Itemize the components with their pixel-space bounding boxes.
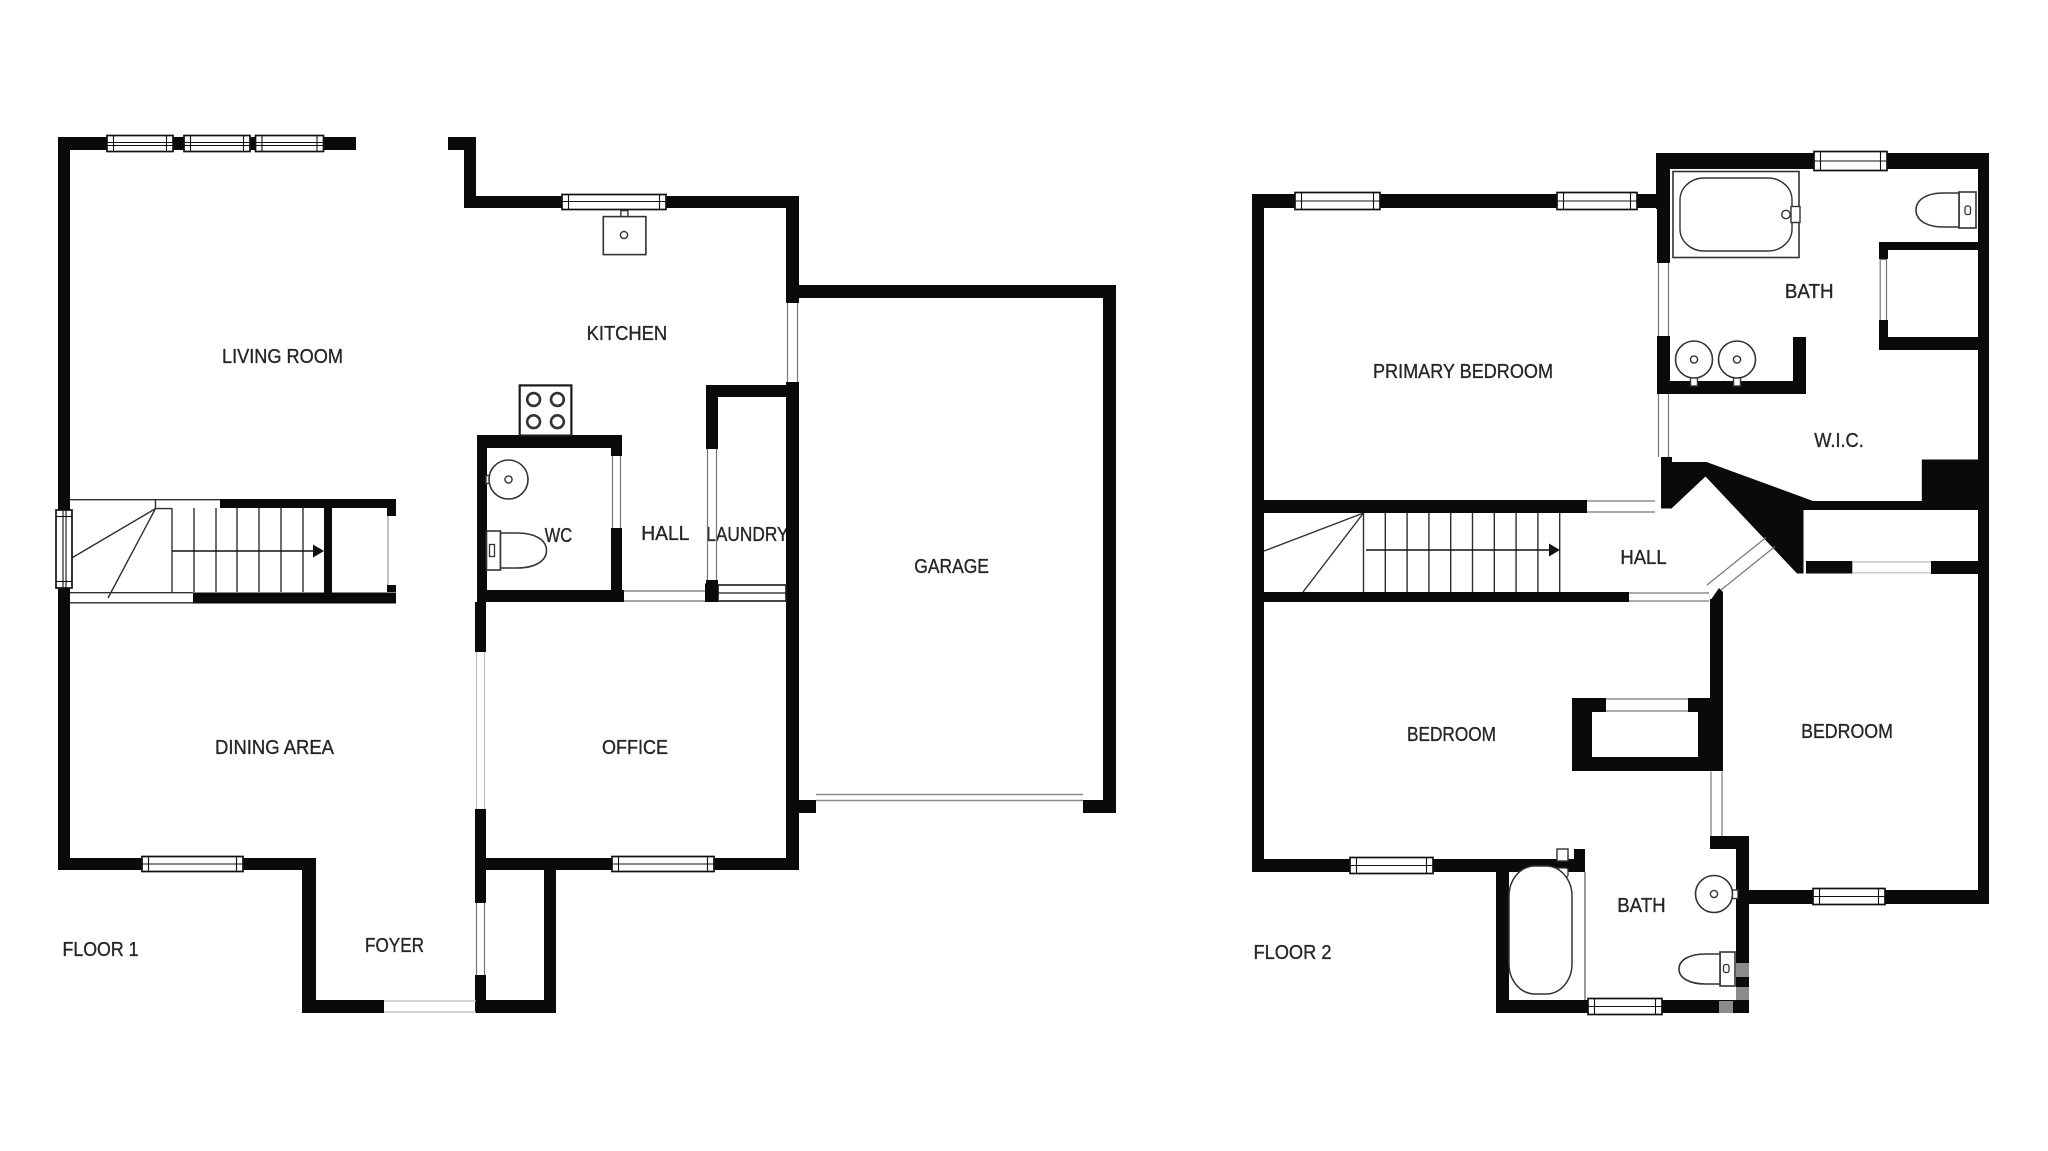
svg-text:LIVING ROOM: LIVING ROOM: [222, 345, 343, 368]
svg-text:LAUNDRY: LAUNDRY: [706, 523, 788, 546]
svg-text:FLOOR 1: FLOOR 1: [63, 938, 139, 961]
svg-text:BEDROOM: BEDROOM: [1407, 723, 1496, 746]
svg-text:PRIMARY BEDROOM: PRIMARY BEDROOM: [1373, 360, 1553, 383]
svg-text:BATH: BATH: [1785, 280, 1834, 303]
svg-text:W.I.C.: W.I.C.: [1814, 429, 1864, 452]
svg-text:FLOOR 2: FLOOR 2: [1253, 941, 1331, 964]
svg-text:WC: WC: [545, 524, 573, 547]
svg-text:KITCHEN: KITCHEN: [587, 322, 668, 345]
svg-text:HALL: HALL: [641, 522, 689, 545]
svg-text:GARAGE: GARAGE: [914, 555, 989, 578]
svg-text:BATH: BATH: [1617, 894, 1665, 917]
svg-text:OFFICE: OFFICE: [602, 736, 668, 759]
svg-text:FOYER: FOYER: [365, 934, 424, 957]
svg-text:BEDROOM: BEDROOM: [1801, 720, 1893, 743]
svg-text:DINING AREA: DINING AREA: [215, 736, 334, 759]
svg-text:HALL: HALL: [1620, 546, 1666, 569]
